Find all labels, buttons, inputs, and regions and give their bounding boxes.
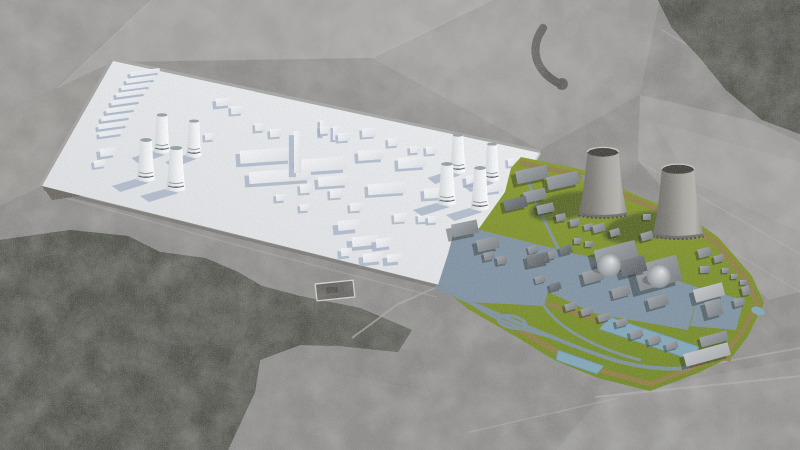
power-plant-site-visualization xyxy=(0,0,800,450)
aerial-render-stage xyxy=(0,0,800,450)
photo-grain-overlay xyxy=(0,0,800,450)
film-grain xyxy=(0,0,800,450)
